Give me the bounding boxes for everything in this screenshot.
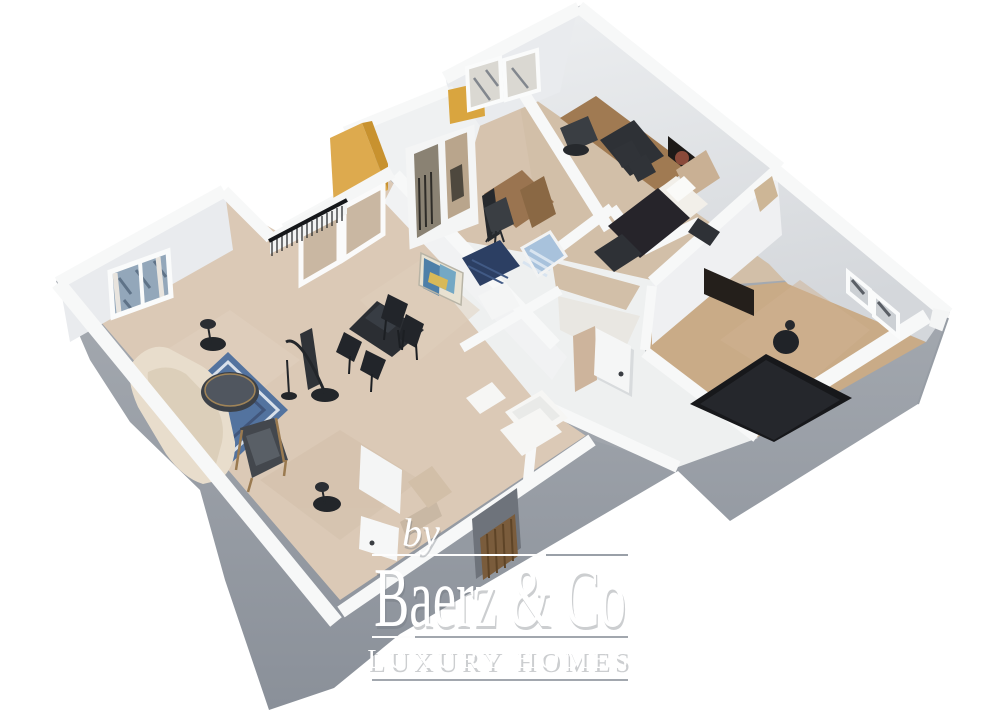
svg-text:by: by — [402, 510, 440, 555]
svg-text:LUXURY HOMES: LUXURY HOMES — [367, 644, 632, 674]
svg-text:Baerz & Co: Baerz & Co — [374, 551, 626, 645]
